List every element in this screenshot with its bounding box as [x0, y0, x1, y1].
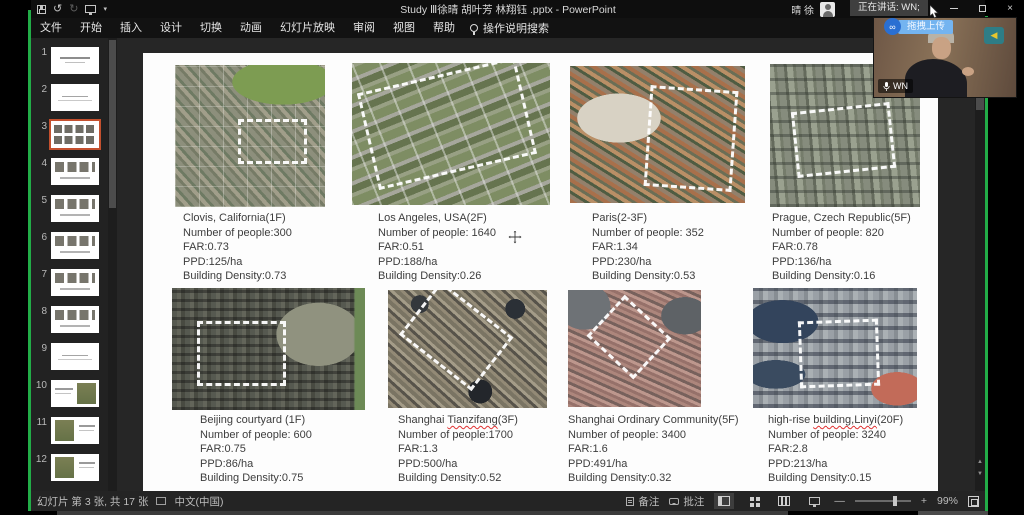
ribbon-tab[interactable]: 视图	[384, 18, 424, 38]
site-boundary-outline	[238, 119, 307, 164]
ribbon-tab[interactable]: 切换	[191, 18, 231, 38]
slide-thumbnail-row[interactable]: 4	[33, 158, 117, 186]
slideshow-view-button[interactable]	[804, 493, 824, 509]
location-text: Shanghai Ordinary Community(5F)	[568, 414, 739, 426]
site-boundary-outline	[644, 85, 738, 192]
location-spellcheck-text: building,Linyi	[813, 414, 877, 426]
caption-location: Beijing courtyard (1F)	[200, 413, 312, 428]
minimize-button[interactable]	[940, 0, 968, 16]
slide-thumbnail-image[interactable]	[51, 158, 99, 185]
previous-slide-button[interactable]: ▲	[977, 459, 983, 465]
location-text: Prague, Czech Republic(5F)	[772, 212, 911, 224]
slide-thumbnail-row[interactable]: 9	[33, 343, 117, 371]
ribbon-tabs: 文件 开始 插入 设计 切换 动画 幻灯片放映 审阅 视图 帮助 操	[31, 18, 985, 38]
normal-view-icon	[718, 496, 730, 506]
slide-thumbnail-row[interactable]: 5	[33, 195, 117, 223]
satellite-image[interactable]	[352, 63, 550, 205]
caption-far: FAR:0.51	[378, 240, 496, 255]
caption-people: Number of people:300	[183, 226, 292, 241]
caption-far: FAR:1.6	[568, 442, 739, 457]
speaker-hand	[962, 67, 974, 76]
caption-people: Number of people: 600	[200, 428, 312, 443]
caption-location: Shanghai Tianzifang(3F)	[398, 413, 518, 428]
slide-sorter-view-button[interactable]	[744, 493, 764, 509]
caption-ppd: PPD:188/ha	[378, 255, 496, 270]
caption-density: Building Density:0.16	[772, 269, 911, 284]
normal-view-button[interactable]	[714, 493, 734, 509]
caption-density: Building Density:0.26	[378, 269, 496, 284]
caption-ppd: PPD:125/ha	[183, 255, 292, 270]
thumbnail-scrollbar-thumb[interactable]	[109, 40, 116, 208]
ribbon-tab[interactable]: 开始	[71, 18, 111, 38]
site-boundary-outline	[399, 290, 514, 391]
slide-sorter-icon	[750, 497, 754, 501]
slide-canvas: Clovis, California(1F) Number of people:…	[117, 38, 975, 491]
slide-number: 11	[33, 417, 47, 429]
caption-ppd: PPD:136/ha	[772, 255, 911, 270]
undo-icon[interactable]: ↺	[53, 4, 62, 15]
slide-thumbnail-row[interactable]: 3	[33, 121, 117, 149]
caption-location: Paris(2-3F)	[592, 211, 704, 226]
thumbnail-scrollbar[interactable]	[108, 38, 117, 491]
caption-people: Number of people: 1640	[378, 226, 496, 241]
netdisk-upload[interactable]: ∞ 拖拽上传	[884, 18, 953, 35]
slide-number: 8	[33, 306, 47, 318]
maximize-icon	[979, 5, 986, 12]
status-bar: 幻灯片 第 3 张, 共 17 张 中文(中国) 备注 批注 — + 99%	[31, 491, 985, 511]
participant-label: WN	[878, 79, 913, 93]
zoom-level[interactable]: 99%	[937, 495, 958, 507]
fit-to-window-icon[interactable]	[968, 496, 979, 507]
caption-people: Number of people: 3400	[568, 428, 739, 443]
minimize-icon	[950, 8, 958, 9]
slide-thumbnail-row[interactable]: 10	[33, 380, 117, 408]
site-boundary-outline	[197, 321, 286, 386]
case-caption[interactable]: Prague, Czech Republic(5F) Number of peo…	[772, 211, 911, 284]
powerpoint-window: ↺ ↻ ▾ Study Ⅲ徐晴 胡叶芳 林翔钰 .pptx - PowerPoi…	[31, 0, 985, 511]
ribbon-tab[interactable]: 动画	[231, 18, 271, 38]
speaker-face	[932, 37, 951, 59]
caption-people: Number of people: 352	[592, 226, 704, 241]
canvas-scrollbar[interactable]: ▲ ▼	[975, 38, 985, 491]
location-text: Los Angeles, USA(2F)	[378, 212, 487, 224]
zoom-slider-thumb[interactable]	[893, 496, 897, 506]
display-settings-icon[interactable]	[156, 497, 166, 505]
slide-number: 10	[33, 380, 47, 392]
slideshow-view-icon	[809, 497, 820, 505]
next-slide-button[interactable]: ▼	[977, 471, 983, 477]
status-bar-right: 备注 批注 — + 99%	[626, 493, 979, 509]
caption-far: FAR:1.34	[592, 240, 704, 255]
case-panel: high-rise building,Linyi(20F) Number of …	[753, 288, 917, 408]
slide-number: 9	[33, 343, 47, 355]
site-boundary-outline	[791, 102, 896, 178]
ribbon-tab[interactable]: 文件	[31, 18, 71, 38]
mouse-cursor	[930, 5, 940, 19]
caption-ppd: PPD:500/ha	[398, 457, 518, 472]
case-caption[interactable]: Los Angeles, USA(2F) Number of people: 1…	[378, 211, 496, 284]
location-text: Clovis, California(1F)	[183, 212, 286, 224]
close-button[interactable]: ×	[996, 0, 1024, 16]
location-text: Paris(2-3F)	[592, 212, 647, 224]
slide-thumbnail-row[interactable]: 2	[33, 84, 117, 112]
site-boundary-outline	[357, 63, 538, 191]
slide-thumbnail-image[interactable]	[51, 195, 99, 222]
slide-3: Clovis, California(1F) Number of people:…	[143, 53, 938, 491]
slide-counter: 幻灯片 第 3 张, 共 17 张	[37, 494, 148, 509]
slide-thumbnail-row[interactable]: 11	[33, 417, 117, 445]
caption-far: FAR:1.3	[398, 442, 518, 457]
ribbon-tab[interactable]: 设计	[151, 18, 191, 38]
caption-density: Building Density:0.15	[768, 471, 903, 486]
notes-icon	[626, 497, 634, 506]
location-suffix: (3F)	[498, 414, 518, 426]
case-caption[interactable]: Paris(2-3F) Number of people: 352 FAR:1.…	[592, 211, 704, 284]
site-boundary-outline	[798, 319, 881, 389]
satellite-image[interactable]	[568, 290, 701, 407]
zoom-in-button[interactable]: +	[921, 495, 927, 507]
reading-view-icon	[778, 496, 790, 506]
lightbulb-icon	[470, 24, 478, 32]
site-boundary-outline	[587, 294, 672, 379]
case-caption[interactable]: Shanghai Tianzifang(3F) Number of people…	[398, 413, 518, 486]
slide-thumbnail-image[interactable]	[51, 47, 99, 74]
slide-number: 1	[33, 47, 47, 59]
caption-density: Building Density:0.53	[592, 269, 704, 284]
slide-number: 4	[33, 158, 47, 170]
caption-location: Clovis, California(1F)	[183, 211, 292, 226]
satellite-image[interactable]	[175, 65, 325, 207]
caption-location: Los Angeles, USA(2F)	[378, 211, 496, 226]
language-status[interactable]: 中文(中国)	[174, 494, 223, 509]
slide-thumbnail-row[interactable]: 6	[33, 232, 117, 260]
case-panel: Shanghai Ordinary Community(5F) Number o…	[568, 290, 701, 407]
screenshare-border-left	[28, 10, 31, 511]
caption-density: Building Density:0.32	[568, 471, 739, 486]
workspace: 1 2 3 4	[31, 38, 985, 491]
slide-thumbnail-row[interactable]: 1	[33, 47, 117, 75]
quick-access-toolbar: ↺ ↻ ▾	[31, 4, 107, 15]
slide-thumbnail-image[interactable]	[51, 232, 99, 259]
slide-number: 2	[33, 84, 47, 96]
slide-thumbnail-image[interactable]	[51, 454, 99, 481]
case-caption[interactable]: high-rise building,Linyi(20F) Number of …	[768, 413, 903, 486]
caption-density: Building Density:0.73	[183, 269, 292, 284]
caption-location: Shanghai Ordinary Community(5F)	[568, 413, 739, 428]
account-name: 晴 徐	[791, 2, 814, 17]
case-panel: Los Angeles, USA(2F) Number of people: 1…	[352, 63, 550, 205]
location-spellcheck-text: Tianzifang	[447, 414, 497, 426]
comments-icon	[669, 498, 679, 505]
slide-thumbnail-row[interactable]: 8	[33, 306, 117, 334]
drag-upload-button[interactable]: 拖拽上传	[898, 20, 953, 34]
caption-density: Building Density:0.52	[398, 471, 518, 486]
screen: ↺ ↻ ▾ Study Ⅲ徐晴 胡叶芳 林翔钰 .pptx - PowerPoi…	[0, 0, 1024, 515]
ribbon-tab[interactable]: 审阅	[344, 18, 384, 38]
maximize-button[interactable]	[968, 0, 996, 16]
slide-number: 3	[33, 121, 47, 133]
caption-location: high-rise building,Linyi(20F)	[768, 413, 903, 428]
caption-ppd: PPD:213/ha	[768, 457, 903, 472]
slide-thumbnail-image[interactable]	[51, 121, 99, 148]
notes-toggle[interactable]: 备注	[626, 494, 659, 509]
slide-thumbnail-image[interactable]	[51, 84, 99, 111]
tell-me-label: 操作说明搜索	[483, 20, 549, 36]
tell-me-search[interactable]: 操作说明搜索	[470, 20, 549, 36]
case-panel: Shanghai Tianzifang(3F) Number of people…	[388, 290, 547, 408]
case-caption[interactable]: Clovis, California(1F) Number of people:…	[183, 211, 292, 284]
slideshow-from-start-icon[interactable]	[85, 5, 96, 13]
slide-thumbnail-panel: 1 2 3 4	[31, 38, 117, 491]
speaker-body	[905, 59, 967, 97]
reading-view-button[interactable]	[774, 493, 794, 509]
satellite-image[interactable]	[753, 288, 917, 408]
case-panel: Beijing courtyard (1F) Number of people:…	[172, 288, 365, 410]
ribbon-tab[interactable]: 插入	[111, 18, 151, 38]
case-panel: Clovis, California(1F) Number of people:…	[175, 65, 325, 207]
slide-thumbnail-image[interactable]	[51, 343, 99, 370]
comments-toggle[interactable]: 批注	[669, 494, 704, 509]
caption-far: FAR:0.78	[772, 240, 911, 255]
participant-name: WN	[893, 81, 908, 91]
slide-thumbnail-image[interactable]	[51, 306, 99, 333]
title-bar: ↺ ↻ ▾ Study Ⅲ徐晴 胡叶芳 林翔钰 .pptx - PowerPoi…	[31, 0, 985, 18]
caption-ppd: PPD:491/ha	[568, 457, 739, 472]
case-caption[interactable]: Shanghai Ordinary Community(5F) Number o…	[568, 413, 739, 486]
slide-number: 6	[33, 232, 47, 244]
caption-people: Number of people: 820	[772, 226, 911, 241]
ribbon-tab[interactable]: 帮助	[424, 18, 464, 38]
slide-number: 5	[33, 195, 47, 207]
slide-number: 7	[33, 269, 47, 281]
caption-people: Number of people:1700	[398, 428, 518, 443]
slide-thumbnail-row[interactable]: 7	[33, 269, 117, 297]
caption-people: Number of people: 3240	[768, 428, 903, 443]
caption-far: FAR:2.8	[768, 442, 903, 457]
case-caption[interactable]: Beijing courtyard (1F) Number of people:…	[200, 413, 312, 486]
window-controls: ×	[940, 0, 1024, 16]
caption-far: FAR:0.73	[183, 240, 292, 255]
caption-ppd: PPD:230/ha	[592, 255, 704, 270]
case-panel: Paris(2-3F) Number of people: 352 FAR:1.…	[570, 66, 745, 203]
save-icon[interactable]	[37, 5, 46, 14]
slide-number: 12	[33, 454, 47, 466]
satellite-image[interactable]	[172, 288, 365, 410]
location-text: high-rise	[768, 414, 813, 426]
caption-density: Building Density:0.75	[200, 471, 312, 486]
ribbon-tab[interactable]: 幻灯片放映	[271, 18, 344, 38]
location-text: Beijing courtyard (1F)	[200, 414, 305, 426]
satellite-image[interactable]	[570, 66, 745, 203]
slide-thumbnail-image[interactable]	[51, 417, 99, 444]
mic-icon	[883, 82, 890, 91]
satellite-image[interactable]	[388, 290, 547, 408]
zoom-out-button[interactable]: —	[834, 495, 845, 507]
customize-toolbar-caret-icon[interactable]: ▾	[103, 6, 107, 13]
caption-far: FAR:0.75	[200, 442, 312, 457]
speaking-indicator: 正在讲话: WN;	[850, 0, 928, 16]
slide-thumbnail-row[interactable]: 12	[33, 454, 117, 482]
netdisk-icon: ∞	[884, 18, 901, 35]
avatar[interactable]	[820, 2, 835, 17]
caption-ppd: PPD:86/ha	[200, 457, 312, 472]
zoom-slider[interactable]	[855, 500, 911, 502]
location-suffix: (20F)	[877, 414, 903, 426]
wall-logo: ◀	[984, 27, 1004, 44]
move-cursor	[508, 230, 522, 244]
redo-icon: ↻	[69, 4, 78, 15]
slide-thumbnail-image[interactable]	[51, 380, 99, 407]
caption-location: Prague, Czech Republic(5F)	[772, 211, 911, 226]
window-title: Study Ⅲ徐晴 胡叶芳 林翔钰 .pptx - PowerPoint	[400, 2, 616, 17]
slide-thumbnail-image[interactable]	[51, 269, 99, 296]
location-text: Shanghai	[398, 414, 447, 426]
